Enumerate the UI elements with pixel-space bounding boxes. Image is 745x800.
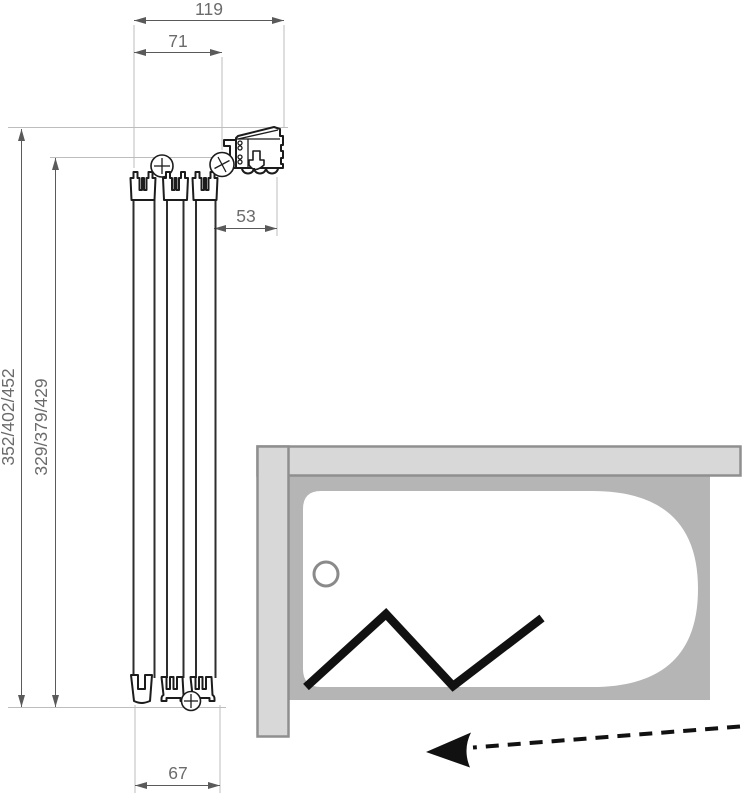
dimension-label-glass-width: 71 (168, 31, 187, 51)
dimension-label-stack-width: 67 (168, 763, 187, 783)
drain-circle-icon (314, 562, 338, 586)
dimension-glass-heights: 329/379/429 (31, 158, 59, 707)
dimension-label-total-heights: 352/402/452 (0, 368, 18, 465)
dimension-total-heights: 352/402/452 (0, 129, 25, 707)
dimension-label-wall-clearance: 53 (236, 206, 255, 226)
wall-left (258, 447, 289, 737)
dimension-glass-width: 71 (134, 31, 222, 56)
bathtub-top-view (258, 447, 741, 737)
dimension-label-frame-width: 119 (195, 0, 223, 19)
dimension-label-glass-heights: 329/379/429 (31, 378, 51, 475)
screw-head-icon (210, 153, 234, 177)
panel-glass-lines (134, 196, 216, 678)
bottom-end-caps (131, 675, 215, 703)
folding-screen-profile-section (131, 155, 218, 711)
wall-top (258, 447, 741, 476)
fold-direction-arrow-icon (426, 727, 740, 768)
diagram-canvas: 119 71 53 67 352/402/452 329/379/429 (0, 0, 745, 800)
dimension-stack-width: 67 (135, 763, 220, 789)
dimension-wall-clearance: 53 (214, 206, 277, 232)
screw-head-icon (182, 692, 201, 711)
technical-drawing: 119 71 53 67 352/402/452 329/379/429 (0, 0, 745, 800)
top-hinge-profiles (131, 172, 218, 200)
wall-profile-section (210, 127, 283, 177)
dimension-frame-width: 119 (134, 0, 284, 24)
bathtub-interior (303, 491, 698, 687)
